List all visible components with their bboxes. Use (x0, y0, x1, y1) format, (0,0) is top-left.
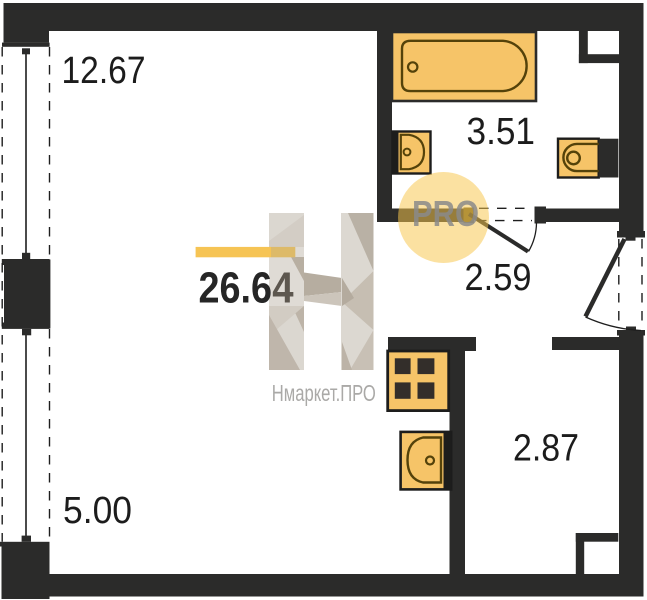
svg-text:12.67: 12.67 (62, 50, 146, 92)
svg-text:Нмаркет.ПРО: Нмаркет.ПРО (272, 380, 376, 406)
svg-text:2.87: 2.87 (513, 428, 579, 470)
svg-text:PRO: PRO (412, 193, 479, 234)
svg-text:5.00: 5.00 (63, 490, 132, 532)
svg-text:4: 4 (272, 264, 294, 313)
svg-text:26.6: 26.6 (199, 264, 273, 313)
svg-text:3.51: 3.51 (467, 111, 536, 153)
svg-text:2.59: 2.59 (465, 257, 532, 299)
